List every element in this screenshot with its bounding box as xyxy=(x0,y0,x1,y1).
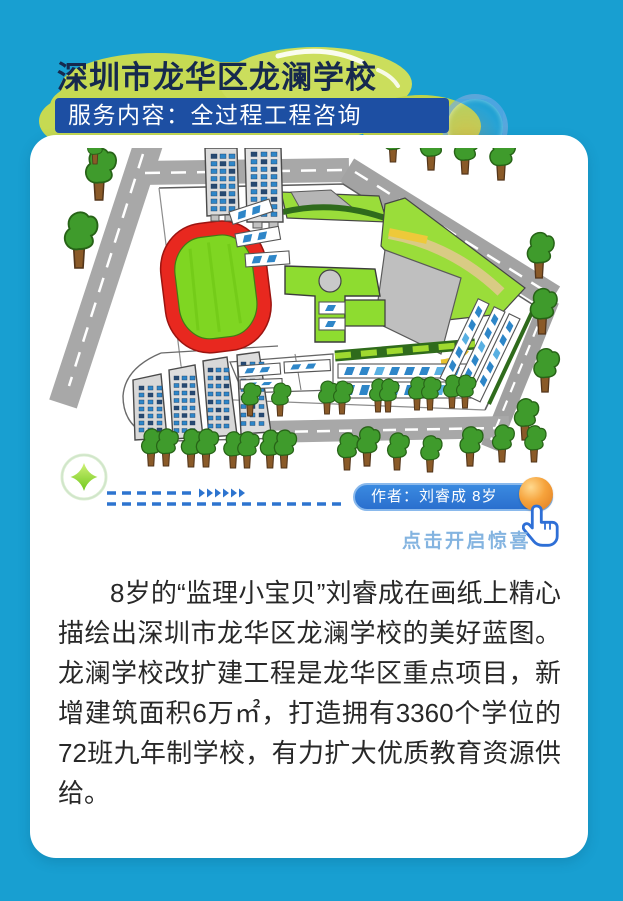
service-banner: 服务内容：全过程工程咨询 xyxy=(55,98,449,133)
sparkle-icon xyxy=(58,451,110,503)
page-title: 深圳市龙华区龙澜学校 xyxy=(57,52,377,97)
service-banner-label: 服务内容：全过程工程咨询 xyxy=(55,98,449,133)
content-card: 作者：刘睿成 8岁 点击开启惊喜 8岁的“监理小宝贝”刘睿成在画纸上精心描绘出深… xyxy=(30,135,588,858)
surprise-hint[interactable]: 点击开启惊喜 xyxy=(402,526,531,553)
page-background: { "header": { "title": "深圳市龙华区龙澜学校", "su… xyxy=(0,0,623,901)
dashed-lines-decoration xyxy=(105,487,365,511)
arrow-icons xyxy=(199,489,245,498)
campus-drawing xyxy=(33,148,585,478)
article-paragraph: 8岁的“监理小宝贝”刘睿成在画纸上精心描绘出深圳市龙华区龙澜学校的美好蓝图。龙澜… xyxy=(58,573,561,813)
